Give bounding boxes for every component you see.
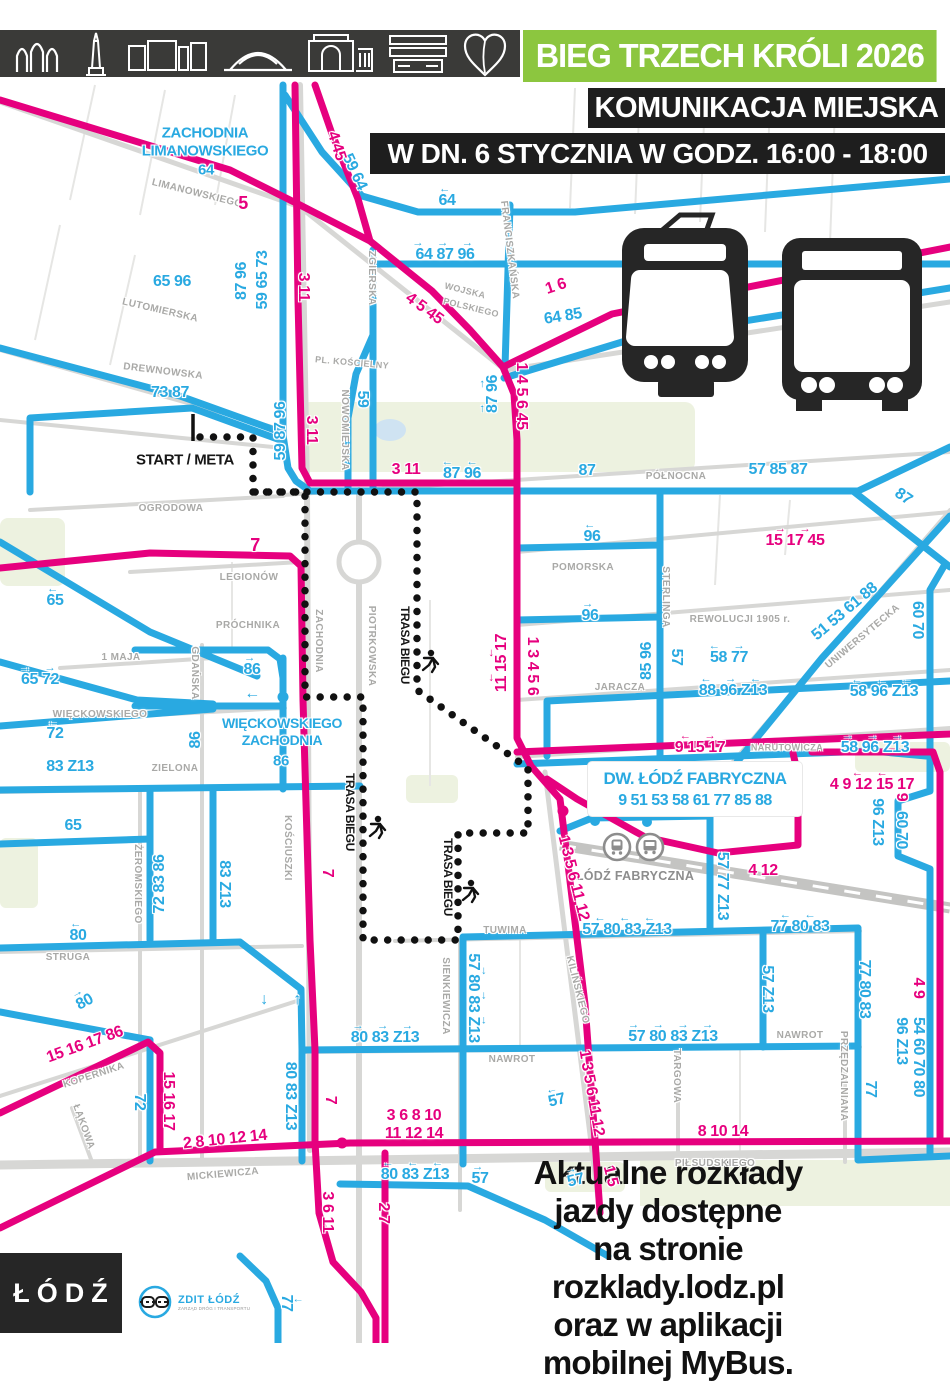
street-name-label: PIŁSUDSKIEGO (675, 1159, 755, 1169)
pond (374, 419, 406, 441)
fabryczna-box-title: DW. ŁÓDŹ FABRYCZNA (603, 769, 786, 789)
street-name-label: NAWROT (777, 1031, 824, 1041)
bus-route-label: → → → →57 80 83 Z13 (628, 1021, 719, 1045)
bus-route-label: ← ← ←80 83 Z13 (381, 1159, 449, 1183)
street-name-label: POMORSKA (552, 563, 614, 573)
tram-route-label: 3 11 (303, 416, 319, 445)
event-title: BIEG TRZECH KRÓLI 2026 (523, 30, 937, 82)
bus-route-label: 65 (65, 818, 82, 834)
transit-map-poster: BIEG TRZECH KRÓLI 2026 KOMUNIKACJA MIEJS… (0, 0, 950, 1343)
bus-route-label: 54 60 70 80 (910, 1017, 926, 1097)
tram-route-label: 3 6 11 (319, 1191, 335, 1232)
street-name-label: PIOTRKOWSKA (366, 606, 376, 687)
bus-route-label: → → →57 80 83 Z13 (465, 953, 489, 1043)
zdit-logo-icon (138, 1285, 172, 1319)
runner-icon (370, 816, 385, 838)
bus-route-label: → →65 72 (19, 664, 60, 688)
monument-icon (78, 31, 114, 77)
run-course-label: TRASA BIEGU (399, 606, 411, 684)
bus-route-label: 60 70 (893, 811, 909, 849)
runner-icon (463, 880, 478, 902)
bus-route-label: 72 83 86 (152, 854, 168, 913)
bus-route-label: ← ←77 80 83 (770, 911, 829, 935)
bus-route-label: → → →80 83 Z13 (351, 1022, 419, 1046)
library-slabs-icon (388, 34, 448, 74)
tram-route-label: 11 12 14 (385, 1126, 443, 1142)
street-name-label: LEGIONÓW (220, 573, 279, 583)
bus-route-label: 59 65 73 (255, 250, 271, 309)
bus-route-label: ←64 (439, 185, 456, 209)
tram-route-label: 3 11 (392, 462, 421, 478)
street-name-label: WIĘCKOWSKIEGO (53, 710, 148, 720)
bus-route-label: 80 83 Z13 (282, 1062, 298, 1130)
street-name-label: PRZĘDZALNIANA (838, 1031, 848, 1121)
tram-route-label: → →15 17 45 (765, 525, 824, 549)
bus-route-label: 57 85 87 (748, 462, 807, 478)
tram-route-label: 7 (319, 869, 335, 878)
bus-route-label: 83 Z13 (46, 759, 93, 775)
tram-route-label: 8 10 14 (698, 1124, 749, 1140)
bus-station-icon (637, 834, 663, 860)
subtitle-transport: KOMUNIKACJA MIEJSKA (588, 88, 945, 128)
street-name-label: 1 MAJA (101, 653, 140, 663)
tram-route-label: ← →9 15 17 (675, 732, 726, 756)
fabryczna-box-routes: 9 51 53 58 61 77 85 88 (618, 792, 772, 810)
map-canvas (0, 0, 950, 1343)
zdit-logo-text: ZDIT ŁÓDŹ (178, 1294, 250, 1306)
bus-route-label: 73 87 (151, 385, 189, 401)
bus-route-label: 85 96 (639, 642, 655, 680)
tram-route-label: 4 12 (748, 863, 778, 879)
bus-route-label: 77 (862, 1081, 878, 1098)
bus-route-label: 65 96 (153, 274, 191, 290)
street-name-label: PÓŁNOCNA (646, 472, 706, 482)
bus-route-label: ZACHODNIA (162, 126, 248, 141)
tram-route-label: 15 16 17 (160, 1071, 176, 1130)
tram-route-label: ← ←4 9 12 15 17 (830, 769, 914, 793)
tram-route-label: 5 (238, 194, 248, 212)
bus-route-label: 59 (354, 391, 370, 408)
roundabout (339, 542, 379, 582)
landmark-icons-bar (0, 30, 520, 77)
tram-route-label: 3 6 8 10 (387, 1108, 442, 1124)
bus-icon (782, 238, 922, 411)
bus-route-label: 72 (131, 1094, 147, 1111)
bus-route-label: 87 (579, 463, 596, 479)
fabryczna-station-label: ŁÓDŹ FABRYCZNA (576, 869, 694, 883)
street-name-label: PRÓCHNIKA (216, 621, 280, 631)
street-name-label: KOŚCIUSZKI (282, 815, 292, 881)
street-name-label: GDAŃSKA (189, 646, 199, 699)
street-name-label: ŻEROMSKIEGO (132, 844, 142, 923)
tram-route-label: ← ←11 15 17 (486, 634, 510, 692)
street-name-label: STERLINGA (660, 566, 670, 627)
bus-route-label: 57 (668, 649, 684, 666)
run-course-label: TRASA BIEGU (344, 773, 356, 851)
bus-route-label: ←96 (584, 521, 601, 545)
palace-icon (308, 33, 374, 75)
zdit-logo-subtext: ZARZĄD DRÓG I TRANSPORTU (178, 1306, 250, 1311)
tram-route-label: 1 4 5 6 45 (513, 362, 529, 429)
bus-route-label: 57 77 Z13 (714, 852, 730, 920)
bus-route-label: 64 (198, 163, 214, 178)
subtitle-datetime: W DN. 6 STYCZNIA W GODZ. 16:00 - 18:00 (370, 133, 945, 174)
tram-route-label: 4 9 (910, 977, 926, 998)
bus-route-label: LIMANOWSKIEGO (142, 144, 268, 159)
tram-route-label: 7 (250, 536, 260, 554)
bus-route-label: ZACHODNIA (242, 733, 322, 747)
street-name-label: NARUTOWICZA (751, 744, 823, 753)
bus-route-label: 57 Z13 (759, 965, 775, 1012)
bus-route-label: → → →64 87 96 (412, 239, 478, 263)
manufaktura-building-icon (128, 34, 208, 74)
lodz-city-logo: ŁÓDŹ (0, 1253, 122, 1333)
bus-route-label: WIĘCKOWSKIEGO (222, 716, 342, 730)
bus-route-label: ←72 (47, 718, 64, 742)
street-name-label: REWOLUCJI 1905 r. (690, 615, 791, 625)
zdit-logo: ZDIT ŁÓDŹ ZARZĄD DRÓG I TRANSPORTU (138, 1282, 268, 1322)
bus-route-label: →86 (244, 654, 261, 678)
street-name-label: ZIELONA (152, 764, 199, 774)
street-name-label: TARGOWA (671, 1049, 681, 1103)
tram-route-label: 3 11 (295, 273, 311, 302)
arena-dome-icon (223, 34, 293, 74)
bus-route-label: 96 Z13 (869, 798, 885, 845)
street-name-label: JARACZA (595, 683, 646, 693)
tram-route-label: 7 (322, 1096, 338, 1105)
bus-route-label: 96 Z13 (893, 1017, 909, 1064)
bus-route-label: ↑ (293, 992, 301, 1008)
gate-arches-icon (13, 32, 63, 76)
bus-route-label: ↓77 (278, 1295, 302, 1312)
bus-route-label: → → →58 96 Z13 (841, 732, 909, 756)
street-name-label: STRUGA (46, 953, 91, 963)
bus-route-label: 86 (273, 754, 289, 769)
bus-route-label: ← ←87 96 (441, 458, 482, 482)
street-name-label: ZACHODNIA (313, 609, 323, 673)
fabryczna-routes-box: DW. ŁÓDŹ FABRYCZNA 9 51 53 58 61 77 85 8… (588, 762, 802, 816)
bus-route-label: ↓ (260, 992, 268, 1008)
bus-route-label: ← ← ←58 96 Z13 (850, 676, 918, 700)
bus-route-label: ← → ←88 96 Z13 (699, 675, 767, 699)
bus-route-label: → →87 96 (477, 373, 501, 414)
bus-route-label: 83 Z13 (216, 860, 232, 907)
bus-route-label: →57 (472, 1163, 489, 1187)
tram-route-label: 9 (893, 793, 909, 802)
street-name-label: NOWOMIEJSKA (339, 389, 349, 470)
bus-route-label: 77 80 83 (856, 959, 872, 1018)
bus-route-label: →96 (582, 600, 599, 624)
street-name-label: ZGIERSKA (366, 251, 376, 306)
bus-route-label: 87 96 (234, 262, 250, 300)
run-course-label: START / META (136, 453, 234, 468)
run-course-label: TRASA BIEGU (442, 838, 454, 916)
street-name-label: TUWIMA (483, 926, 527, 936)
street-name-label: OGRODOWA (139, 504, 204, 514)
tram-icon (622, 215, 748, 397)
street-name-label: SIENKIEWICZA (440, 957, 450, 1035)
bus-route-label: ←80 (70, 920, 87, 944)
bus-route-label: ← →58 77 (708, 642, 749, 666)
bus-route-label: 60 70 (909, 601, 925, 639)
bus-route-label: ← (244, 686, 260, 702)
heart-apple-icon (463, 31, 507, 77)
bus-route-label: 86 (188, 732, 204, 749)
street-name-label: NAWROT (489, 1055, 536, 1065)
bus-route-label: 59 87 96 (273, 401, 289, 460)
train-station-icon (604, 834, 630, 860)
tram-route-label: 2 7 (375, 1202, 391, 1223)
bus-route-label: ←65 (47, 585, 64, 609)
tram-route-label: 1 3 4 5 6 (524, 637, 540, 696)
bus-route-label: ← ← ←57 80 83 Z13 (582, 914, 672, 938)
